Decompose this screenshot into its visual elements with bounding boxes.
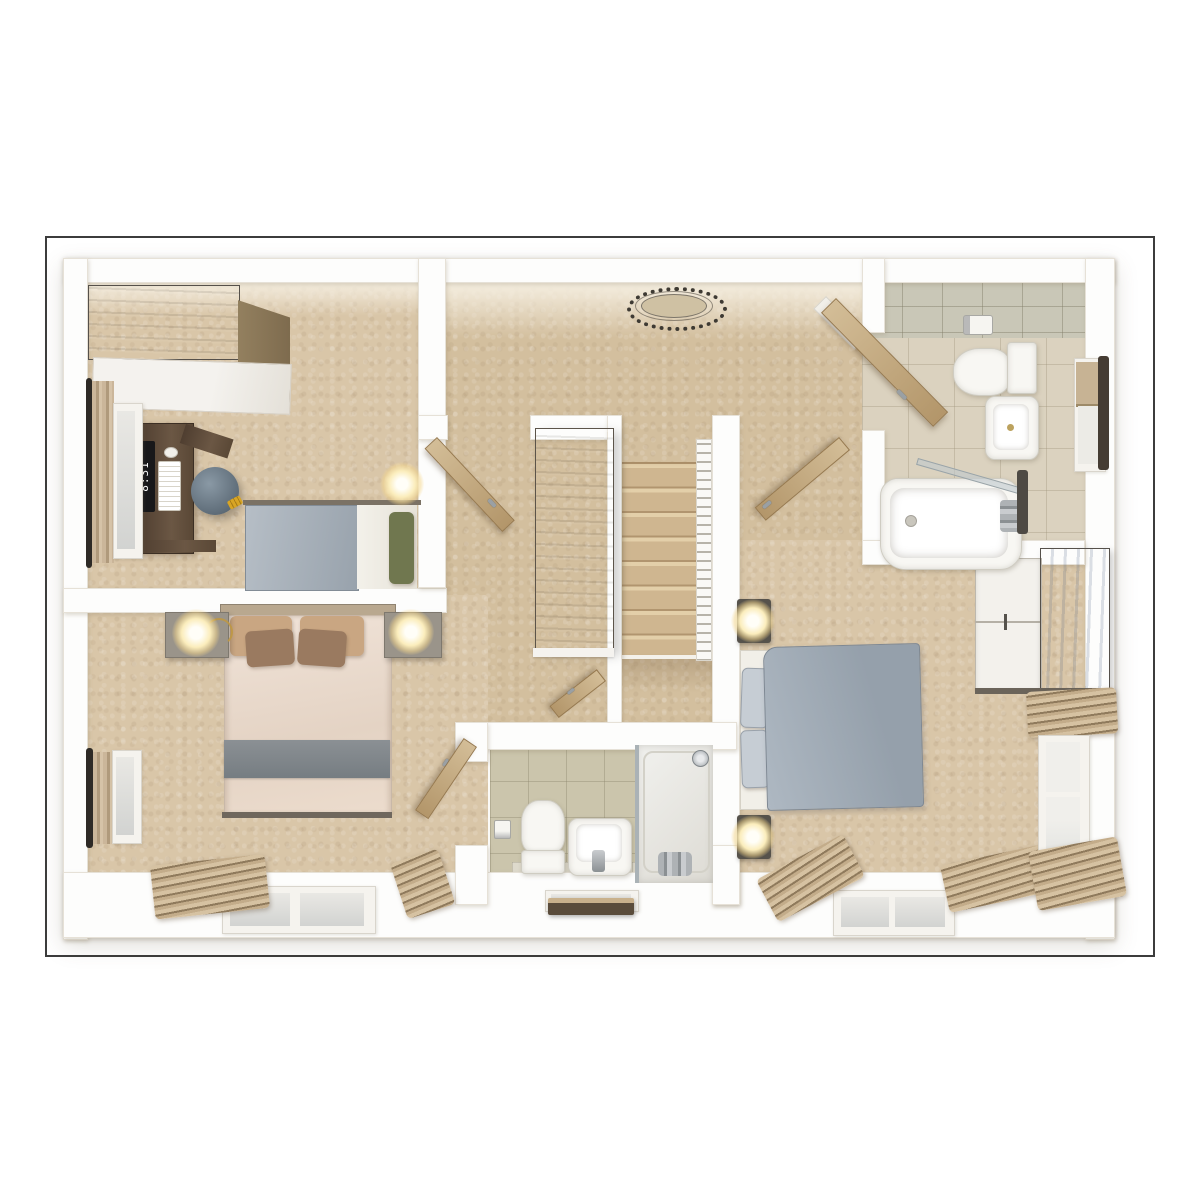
bedroom3-bottom-window-glass-left [841, 897, 889, 927]
master-lamp-right [388, 609, 434, 655]
master-lamp-left [172, 609, 220, 657]
ensuite-toilet-cistern [521, 850, 565, 874]
single-bed-green-pillow [389, 512, 414, 584]
master-bed-footboard [222, 812, 392, 818]
master-curtain-pole [86, 748, 93, 848]
cupboard-plinth [533, 648, 614, 657]
toilet-roll-holder [963, 315, 993, 335]
bathroom-toilet-cistern [1007, 342, 1037, 394]
master-small-pillow-left [245, 628, 295, 667]
shower-head [692, 750, 709, 767]
bedroom3-lamp-top [731, 599, 775, 643]
master-left-window-glass [116, 757, 134, 835]
stair-banister [697, 440, 711, 660]
bedroom2-curtain [92, 381, 114, 563]
basin-tap-dot [1007, 424, 1014, 431]
single-bed-duvet [245, 505, 359, 591]
bedroom3-wardrobe-doors [975, 558, 1042, 692]
staircase [620, 462, 698, 658]
ensuite-roll-holder [494, 820, 511, 839]
bedroom3-wardrobe-door-seam [975, 621, 1040, 623]
bedroom3-wardrobe-handles [1004, 614, 1007, 630]
ensuite-toilet-bowl [521, 800, 565, 854]
bedroom3-wardrobe-side-panel [1040, 548, 1110, 694]
bedroom2-desk-return [138, 540, 216, 552]
exterior-wall-top [63, 258, 1115, 283]
wall-bathroom-left-upper [862, 258, 885, 333]
landing-tall-cupboard [535, 428, 614, 652]
keyboard [158, 461, 181, 511]
master-bottom-window-glass-right [300, 893, 364, 926]
shower-glass-frame [635, 745, 639, 883]
bedroom3-right-curtain-top [1026, 687, 1118, 738]
master-gray-throw [224, 740, 390, 778]
ensuite-bath-mat [548, 898, 634, 915]
mouse [164, 447, 178, 458]
shower-mixer-taps [658, 852, 692, 876]
bedroom3-right-window-mullion [1046, 792, 1080, 797]
bathroom-window-glass [1078, 406, 1100, 464]
bedroom3-bottom-window-glass-right [895, 897, 945, 927]
bathtub-drain [905, 515, 917, 527]
master-small-pillow-right [297, 628, 347, 667]
bathroom-toilet-bowl [953, 348, 1011, 396]
bedroom3-right-window-glass [1046, 742, 1080, 854]
ensuite-basin-tap [592, 850, 605, 872]
bedroom2-wardrobe-top [88, 285, 240, 360]
master-left-curtain [93, 752, 113, 844]
wall-ensuite-left-lower [455, 845, 488, 905]
wall-corridor-top-left [418, 415, 448, 440]
wall-ensuite-right [712, 845, 740, 905]
bedroom3-lamp-bottom [731, 815, 775, 859]
bedroom2-window-glass [117, 411, 135, 549]
ceiling-light-center [641, 294, 707, 318]
floor-plan-render: 8:31 [0, 0, 1200, 1200]
bathroom-window-rod [1098, 356, 1109, 470]
towel-rail [1017, 470, 1028, 534]
bedroom2-bedside-lamp [380, 462, 424, 506]
bedroom3-duvet [763, 643, 924, 811]
